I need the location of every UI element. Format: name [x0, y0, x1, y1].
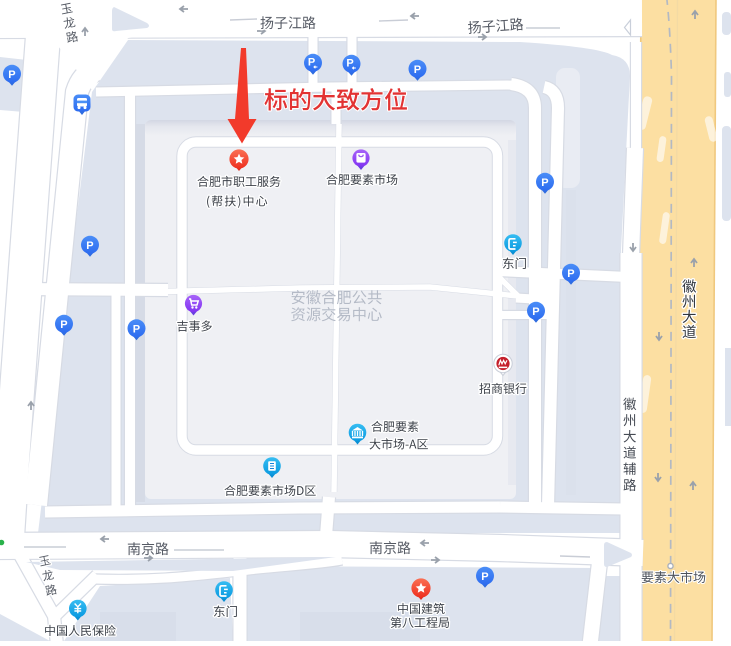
svg-text:P: P: [481, 571, 488, 583]
svg-text:P: P: [60, 319, 67, 331]
svg-text:P: P: [567, 268, 574, 280]
svg-text:P: P: [133, 323, 140, 335]
svg-text:P: P: [541, 177, 548, 189]
svg-text:P: P: [532, 306, 539, 318]
svg-text:P: P: [8, 69, 15, 81]
svg-text:P: P: [86, 240, 93, 252]
svg-text:P: P: [414, 64, 421, 76]
